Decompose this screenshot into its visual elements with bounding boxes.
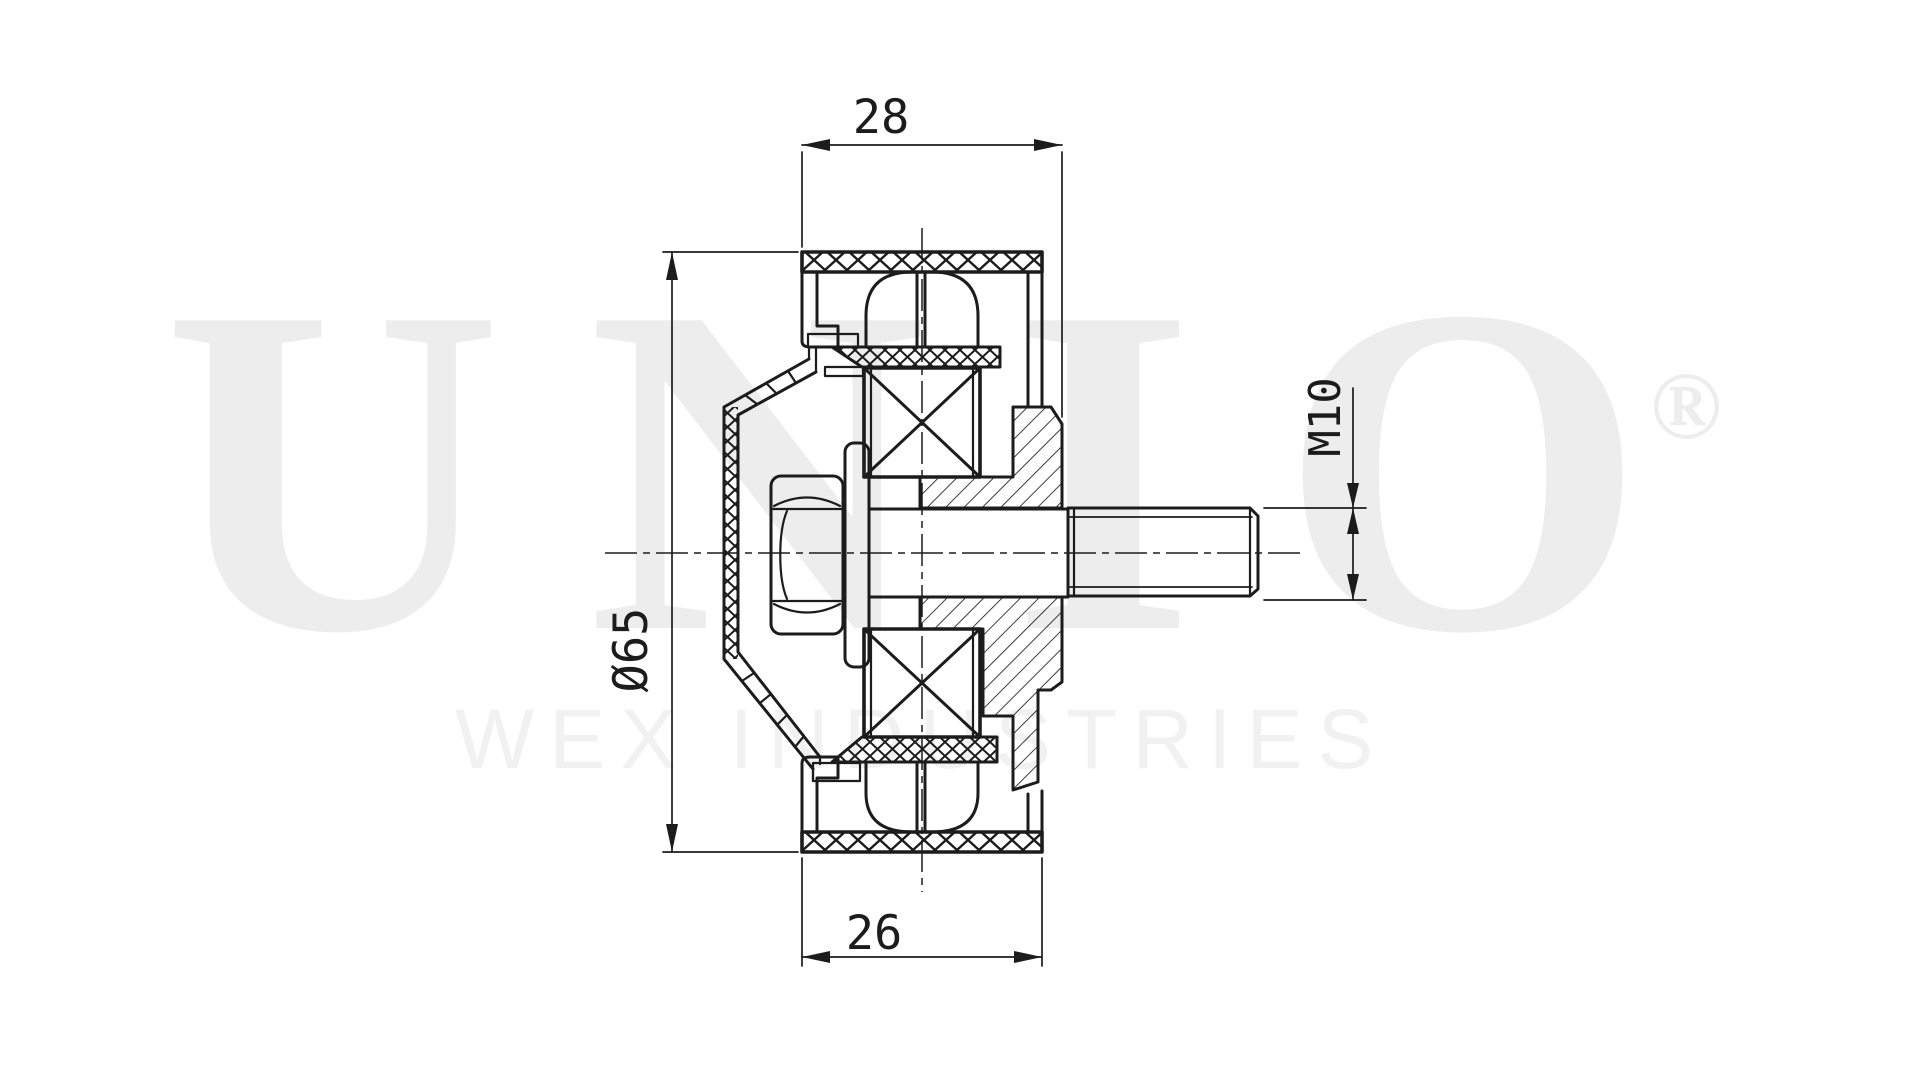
- dim-thread-label: M10: [1300, 377, 1351, 456]
- technical-drawing-page: UNIO ® WEX INDUSTRIES: [0, 0, 1920, 1080]
- registered-trademark-icon: ®: [1650, 352, 1722, 459]
- dim-bottom-width: 26: [802, 858, 1042, 966]
- bearing-liner-lower: [832, 737, 997, 762]
- dim-bottom-width-label: 26: [846, 906, 903, 961]
- dim-arrow-left: [802, 951, 830, 963]
- belt-band-bottom: [802, 832, 1042, 852]
- dim-top-width-label: 28: [853, 90, 910, 145]
- dim-arrow-right: [1034, 139, 1062, 151]
- dim-arrow-left: [802, 139, 830, 151]
- dim-arrow-bottom: [666, 824, 678, 852]
- dim-arrow-right: [1014, 951, 1042, 963]
- dim-outer-diameter-label: Ø65: [604, 608, 659, 693]
- watermark-brand: UNIO: [163, 209, 1730, 730]
- belt-band-top: [802, 252, 1042, 272]
- bearing-liner-upper: [832, 347, 1000, 367]
- pulley-cross-section-drawing: UNIO ® WEX INDUSTRIES: [0, 0, 1920, 1080]
